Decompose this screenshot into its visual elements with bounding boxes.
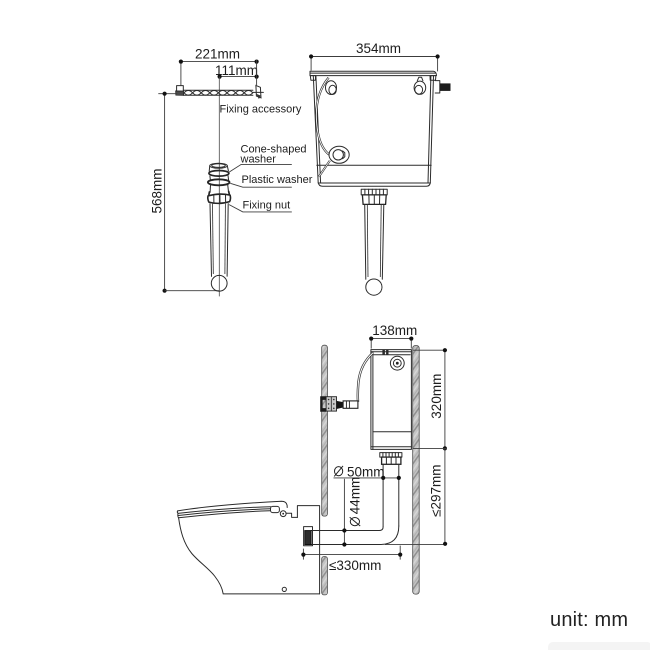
svg-text:221mm: 221mm [195,47,240,62]
svg-text:354mm: 354mm [356,41,401,56]
svg-text:washer: washer [240,153,277,165]
svg-text:138mm: 138mm [372,323,417,338]
svg-text:320mm: 320mm [429,374,444,419]
svg-text:≤330mm: ≤330mm [329,558,381,573]
svg-text:≤297mm: ≤297mm [428,464,443,516]
svg-text:unit: mm: unit: mm [550,609,628,631]
svg-text:Fixing accessory: Fixing accessory [220,104,302,116]
svg-text:Plastic washer: Plastic washer [242,174,313,186]
svg-text:568mm: 568mm [150,168,165,213]
svg-text:44mm: 44mm [347,477,362,515]
svg-text:Fixing nut: Fixing nut [243,200,291,212]
